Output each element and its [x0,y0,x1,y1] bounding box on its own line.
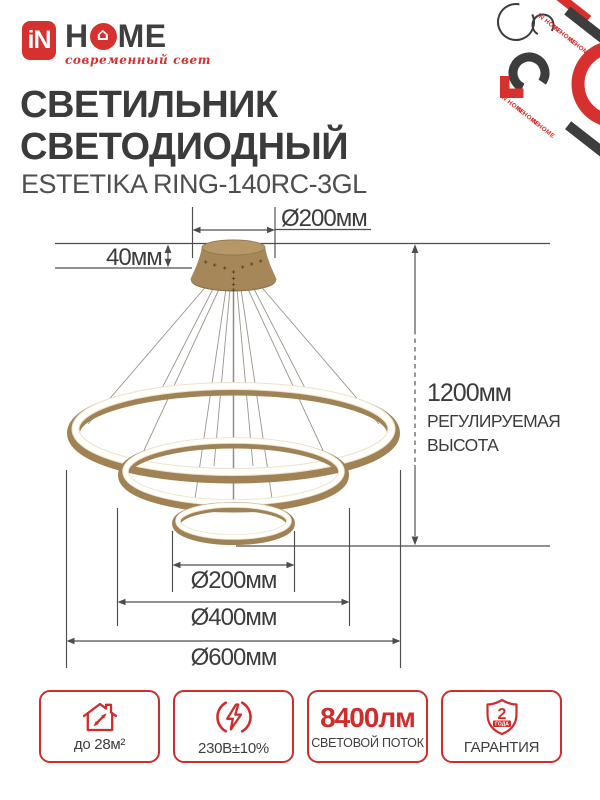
product-card: iN H ⌂ ME современный свет IN HOME IN HO… [0,0,600,800]
dim-canopy-height: 40мм [106,244,162,271]
badge-room-area: до 28м² [39,690,160,763]
badge-luminous-flux: 8400лм СВЕТОВОЙ ПОТОК [307,690,428,763]
dim-ring-large: Ø600мм [191,644,277,671]
dim-height-value: 1200мм [427,379,511,407]
dim-ring-middle: Ø400мм [191,604,277,631]
badge-warranty-label: ГАРАНТИЯ [464,739,539,756]
shield-caption: ГОДА [495,721,509,727]
dim-height-note2: ВЫСОТА [427,435,499,455]
badge-warranty: 2 ГОДА ГАРАНТИЯ [441,690,562,763]
badge-area-label: до 28м² [74,736,125,753]
technical-drawing: Ø200мм 40мм 1200мм РЕГУЛИРУЕМАЯ ВЫСОТА Ø… [0,0,600,800]
badge-voltage: 230В±10% [173,690,294,763]
canopy [191,240,277,292]
dim-height-note1: РЕГУЛИРУЕМАЯ [427,411,560,431]
dim-ring-small: Ø200мм [191,567,277,594]
shield-number: 2 [497,706,506,723]
flux-label: СВЕТОВОЙ ПОТОК [311,736,424,750]
house-expand-icon [80,700,120,733]
ring-small [177,505,291,541]
flux-value: 8400лм [320,704,415,732]
feature-badges: до 28м² 230В±10% 8400лм СВЕТОВОЙ ПОТОК 2… [39,690,562,763]
warranty-shield-icon: 2 ГОДА [484,698,520,736]
voltage-icon [213,697,255,737]
badge-voltage-label: 230В±10% [198,740,269,757]
dim-canopy-diameter: Ø200мм [281,205,367,232]
